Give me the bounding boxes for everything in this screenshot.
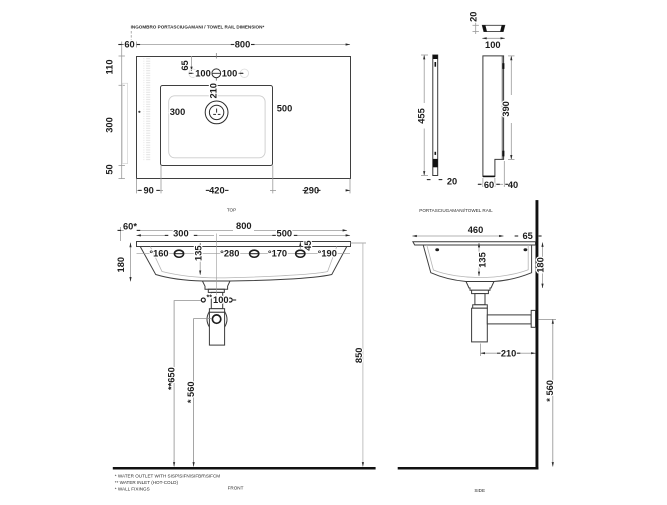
svg-text:100: 100 (222, 69, 238, 79)
svg-text:800: 800 (235, 40, 251, 50)
svg-text:100: 100 (195, 69, 211, 79)
svg-text:65: 65 (523, 231, 533, 241)
svg-text:20: 20 (447, 177, 457, 187)
svg-text:INGOMBRO PORTASCIUGAMANI / TOW: INGOMBRO PORTASCIUGAMANI / TOWEL RAIL DI… (131, 25, 265, 30)
svg-text:420: 420 (209, 186, 225, 196)
svg-text:90: 90 (144, 186, 154, 196)
svg-text:455: 455 (416, 108, 426, 124)
svg-text:* 560: * 560 (545, 380, 555, 402)
svg-text:180: 180 (116, 257, 126, 273)
svg-text:180: 180 (535, 257, 545, 273)
svg-text:* 560: * 560 (186, 381, 196, 403)
svg-text:°160: °160 (149, 249, 168, 259)
svg-text:**: ** (207, 295, 213, 302)
svg-text:SIDE: SIDE (474, 488, 485, 493)
svg-text:* WATER OUTLET WITH SISP\SIFN: * WATER OUTLET WITH SISP\SIFN\SIFBR\SIFC… (115, 473, 220, 478)
svg-text:°170: °170 (268, 249, 287, 259)
svg-text:100: 100 (213, 295, 229, 305)
svg-text:850: 850 (354, 348, 364, 364)
svg-text:FRONT: FRONT (228, 486, 244, 491)
svg-text:460: 460 (468, 225, 484, 235)
svg-text:** WATER INLET (HOT-COLD): ** WATER INLET (HOT-COLD) (115, 480, 179, 485)
svg-text:TOP: TOP (227, 208, 236, 213)
svg-text:100: 100 (485, 40, 501, 50)
svg-text:50: 50 (105, 164, 115, 174)
svg-text:210: 210 (501, 348, 517, 358)
svg-text:60: 60 (124, 40, 134, 50)
svg-text:45: 45 (303, 240, 313, 250)
svg-text:**650: **650 (166, 367, 176, 390)
svg-text:390: 390 (501, 101, 511, 117)
svg-text:20: 20 (469, 12, 479, 22)
svg-text:* WALL FIXINGS: * WALL FIXINGS (115, 486, 150, 491)
svg-text:300: 300 (170, 107, 186, 117)
svg-text:500: 500 (277, 229, 293, 239)
svg-text:500: 500 (277, 104, 293, 114)
svg-text:°280: °280 (220, 249, 239, 259)
svg-text:PORTASCIUGAMANI/TOWEL RAIL: PORTASCIUGAMANI/TOWEL RAIL (419, 208, 493, 213)
svg-text:65: 65 (180, 60, 190, 70)
svg-text:135: 135 (194, 245, 204, 261)
svg-text:800: 800 (236, 221, 252, 231)
svg-text:300: 300 (173, 229, 189, 239)
svg-text:60*: 60* (123, 221, 137, 231)
svg-text:135: 135 (478, 252, 488, 268)
svg-text:40: 40 (508, 180, 518, 190)
svg-text:60: 60 (484, 180, 494, 190)
svg-text:°190: °190 (318, 249, 337, 259)
svg-text:300: 300 (105, 117, 115, 133)
svg-text:210: 210 (208, 83, 218, 99)
svg-text:110: 110 (105, 60, 115, 75)
